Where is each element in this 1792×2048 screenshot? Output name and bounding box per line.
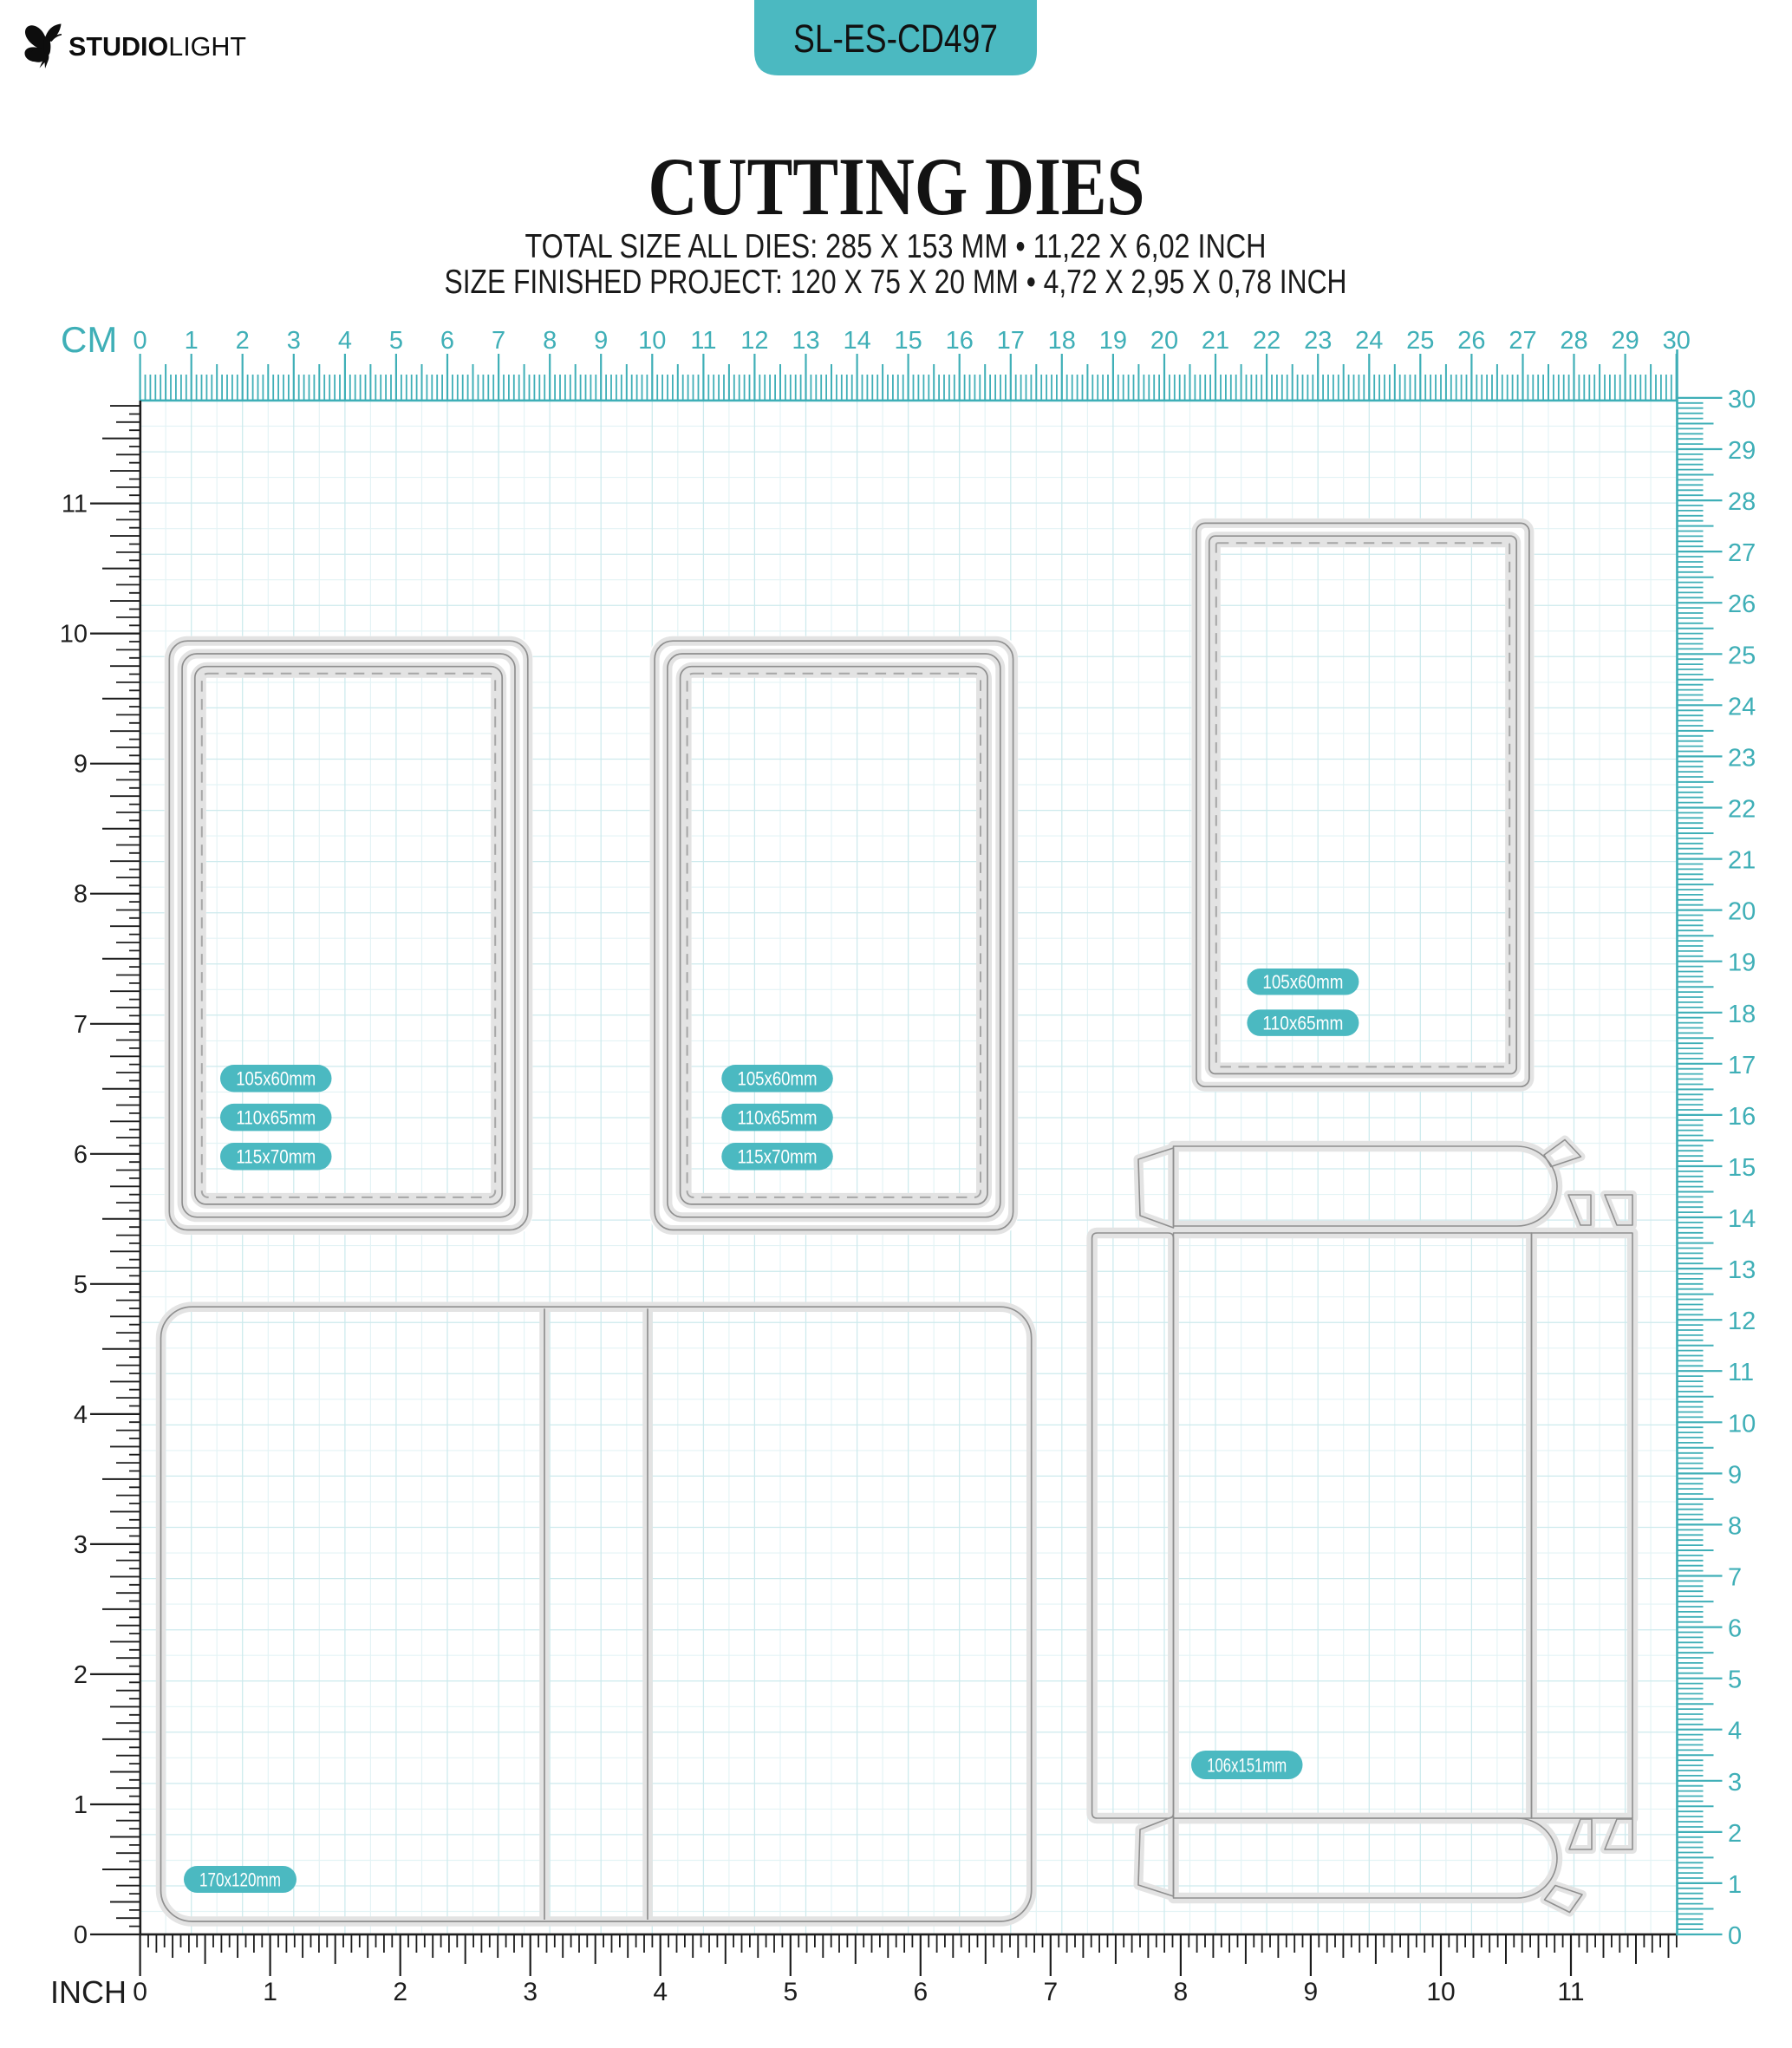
svg-text:11: 11: [1557, 1978, 1584, 2006]
svg-text:18: 18: [1728, 1001, 1756, 1028]
svg-text:30: 30: [1728, 386, 1756, 414]
svg-text:SL-ES-CD497: SL-ES-CD497: [793, 16, 998, 61]
svg-text:8: 8: [74, 881, 88, 909]
svg-text:10: 10: [638, 327, 666, 355]
svg-text:11: 11: [690, 327, 716, 355]
svg-text:13: 13: [1728, 1256, 1756, 1284]
svg-text:2: 2: [1728, 1820, 1742, 1848]
svg-text:10: 10: [60, 621, 88, 649]
svg-text:3: 3: [287, 327, 301, 355]
svg-text:0: 0: [74, 1921, 88, 1949]
svg-text:105x60mm: 105x60mm: [738, 1068, 818, 1090]
svg-text:24: 24: [1355, 327, 1383, 355]
svg-text:7: 7: [74, 1011, 88, 1039]
svg-text:10: 10: [1426, 1978, 1455, 2006]
svg-text:28: 28: [1728, 488, 1756, 516]
svg-text:17: 17: [1728, 1052, 1756, 1079]
svg-text:9: 9: [594, 327, 608, 355]
svg-text:106x151mm: 106x151mm: [1207, 1754, 1287, 1776]
svg-text:23: 23: [1304, 327, 1332, 355]
svg-text:29: 29: [1611, 327, 1639, 355]
svg-text:27: 27: [1509, 327, 1536, 355]
svg-text:115x70mm: 115x70mm: [738, 1146, 818, 1168]
svg-text:CM: CM: [61, 319, 117, 360]
svg-text:25: 25: [1728, 642, 1756, 669]
svg-text:0: 0: [134, 327, 147, 355]
svg-text:29: 29: [1728, 437, 1756, 465]
svg-text:1: 1: [74, 1791, 88, 1819]
svg-text:CUTTING DIES: CUTTING DIES: [648, 140, 1145, 232]
svg-text:TOTAL SIZE ALL DIES: 285 X 153: TOTAL SIZE ALL DIES: 285 X 153 MM • 11,2…: [525, 228, 1267, 265]
svg-text:26: 26: [1728, 590, 1756, 618]
svg-text:4: 4: [1728, 1718, 1742, 1745]
svg-text:SIZE FINISHED PROJECT: 120 X 7: SIZE FINISHED PROJECT: 120 X 75 X 20 MM …: [445, 264, 1347, 301]
svg-text:20: 20: [1728, 898, 1756, 926]
svg-text:19: 19: [1099, 327, 1127, 355]
svg-text:1: 1: [1728, 1871, 1742, 1899]
svg-text:0: 0: [133, 1978, 147, 2006]
svg-text:3: 3: [1728, 1769, 1742, 1797]
svg-text:3: 3: [74, 1531, 88, 1559]
svg-text:8: 8: [1174, 1978, 1189, 2006]
svg-text:12: 12: [740, 327, 768, 355]
svg-text:6: 6: [440, 327, 454, 355]
svg-text:6: 6: [913, 1978, 928, 2006]
svg-text:6: 6: [1728, 1615, 1742, 1643]
svg-text:24: 24: [1728, 693, 1756, 721]
svg-text:13: 13: [792, 327, 819, 355]
svg-text:15: 15: [894, 327, 922, 355]
svg-text:115x70mm: 115x70mm: [236, 1146, 316, 1168]
svg-text:105x60mm: 105x60mm: [236, 1068, 316, 1090]
svg-text:15: 15: [1728, 1154, 1756, 1182]
svg-text:14: 14: [843, 327, 870, 355]
svg-text:12: 12: [1728, 1308, 1756, 1335]
svg-text:7: 7: [1728, 1564, 1742, 1592]
svg-text:19: 19: [1728, 949, 1756, 977]
svg-text:105x60mm: 105x60mm: [1262, 971, 1343, 993]
svg-text:4: 4: [74, 1401, 88, 1429]
svg-text:8: 8: [1728, 1512, 1742, 1540]
svg-text:22: 22: [1253, 327, 1280, 355]
svg-text:9: 9: [1304, 1978, 1319, 2006]
svg-text:110x65mm: 110x65mm: [1262, 1013, 1343, 1034]
svg-text:22: 22: [1728, 796, 1756, 824]
svg-text:11: 11: [1728, 1359, 1754, 1386]
svg-text:2: 2: [74, 1661, 88, 1689]
svg-text:16: 16: [1728, 1103, 1756, 1131]
svg-text:1: 1: [263, 1978, 277, 2006]
svg-text:28: 28: [1560, 327, 1587, 355]
svg-text:21: 21: [1202, 327, 1229, 355]
svg-text:20: 20: [1150, 327, 1178, 355]
svg-text:110x65mm: 110x65mm: [236, 1107, 316, 1129]
svg-text:10: 10: [1728, 1410, 1756, 1438]
svg-text:17: 17: [997, 327, 1025, 355]
svg-text:23: 23: [1728, 744, 1756, 772]
svg-text:6: 6: [74, 1141, 88, 1169]
svg-text:8: 8: [543, 327, 557, 355]
svg-text:110x65mm: 110x65mm: [738, 1107, 818, 1129]
svg-text:7: 7: [492, 327, 505, 355]
svg-text:25: 25: [1406, 327, 1434, 355]
svg-text:5: 5: [389, 327, 403, 355]
svg-text:0: 0: [1728, 1922, 1742, 1950]
svg-text:5: 5: [783, 1978, 798, 2006]
svg-text:16: 16: [946, 327, 974, 355]
svg-text:1: 1: [185, 327, 199, 355]
svg-text:11: 11: [62, 491, 88, 519]
svg-text:9: 9: [74, 751, 88, 779]
svg-text:7: 7: [1043, 1978, 1058, 2006]
svg-text:18: 18: [1048, 327, 1076, 355]
svg-text:3: 3: [523, 1978, 538, 2006]
svg-text:21: 21: [1728, 847, 1756, 875]
svg-text:2: 2: [393, 1978, 407, 2006]
svg-text:4: 4: [653, 1978, 668, 2006]
svg-text:27: 27: [1728, 539, 1756, 567]
svg-text:5: 5: [1728, 1666, 1742, 1694]
svg-text:2: 2: [236, 327, 250, 355]
svg-text:26: 26: [1457, 327, 1485, 355]
svg-text:INCH: INCH: [50, 1974, 127, 2010]
svg-text:170x120mm: 170x120mm: [199, 1869, 281, 1890]
svg-text:4: 4: [338, 327, 352, 355]
svg-text:9: 9: [1728, 1461, 1742, 1489]
svg-text:5: 5: [74, 1271, 88, 1299]
svg-text:14: 14: [1728, 1205, 1756, 1233]
svg-text:STUDIOLIGHT: STUDIOLIGHT: [68, 32, 246, 62]
